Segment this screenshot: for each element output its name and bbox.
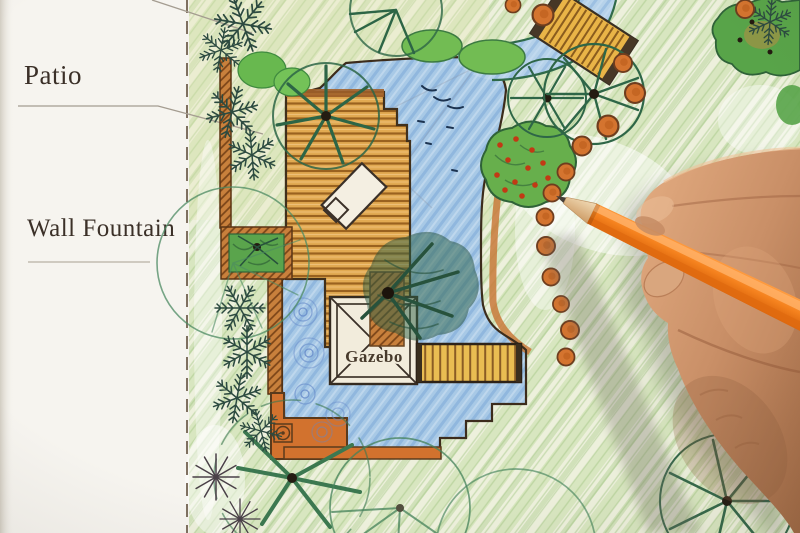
plan-canvas: Patio Wall Fountain [0,0,800,533]
photo-vignette [0,0,800,533]
landscape-plan-photo: Patio Wall Fountain [0,0,800,533]
